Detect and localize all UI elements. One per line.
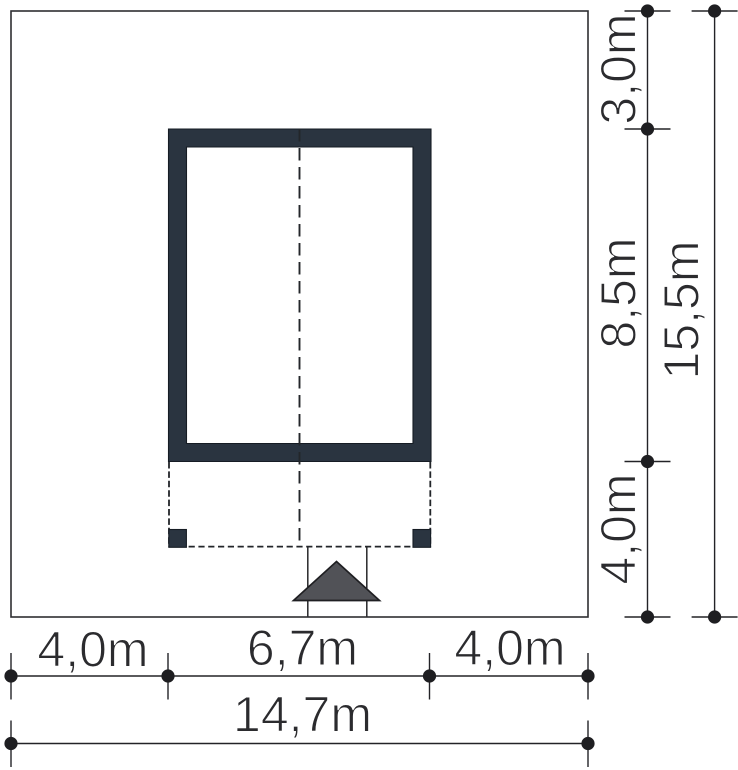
- svg-text:15,5m: 15,5m: [654, 241, 710, 380]
- svg-text:8,5m: 8,5m: [591, 237, 647, 348]
- svg-text:6,7m: 6,7m: [247, 620, 358, 676]
- svg-text:4,0m: 4,0m: [37, 622, 148, 678]
- svg-text:4,0m: 4,0m: [454, 620, 565, 676]
- svg-text:4,0m: 4,0m: [591, 473, 647, 584]
- svg-text:14,7m: 14,7m: [233, 687, 372, 743]
- svg-text:3,0m: 3,0m: [591, 13, 647, 124]
